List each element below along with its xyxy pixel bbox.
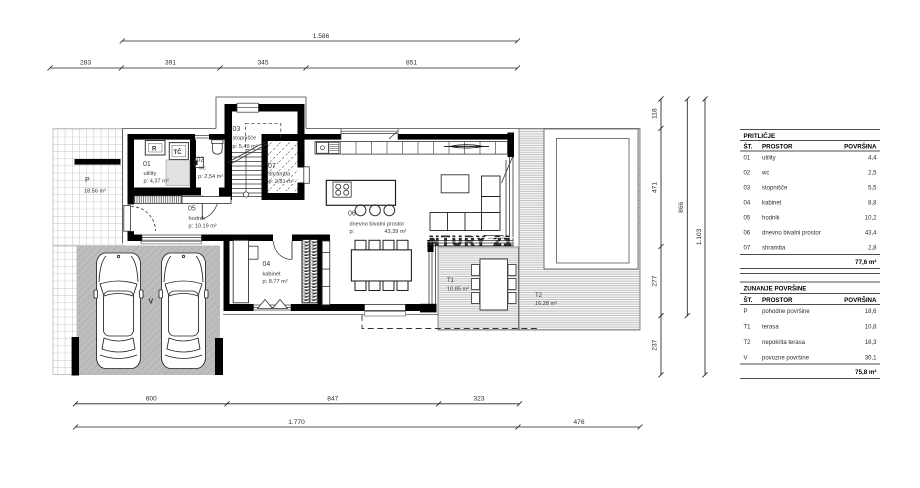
- svg-text:8,8: 8,8: [868, 201, 877, 207]
- svg-text:hodnik: hodnik: [189, 216, 206, 222]
- svg-text:P: P: [744, 309, 748, 315]
- svg-text:POVRŠINA: POVRŠINA: [844, 296, 877, 304]
- svg-text:T2: T2: [535, 293, 543, 299]
- svg-text:PROSTOR: PROSTOR: [762, 297, 793, 304]
- svg-text:10,8: 10,8: [865, 325, 877, 331]
- svg-text:hodnik: hodnik: [762, 216, 781, 222]
- svg-text:04: 04: [263, 261, 271, 268]
- svg-text:NTURY 21: NTURY 21: [429, 233, 514, 249]
- svg-text:R: R: [152, 147, 157, 153]
- svg-text:866: 866: [678, 201, 685, 212]
- svg-text:75,8 m²: 75,8 m²: [855, 369, 876, 376]
- svg-text:18.56 m²: 18.56 m²: [84, 189, 106, 195]
- svg-text:kabinet: kabinet: [263, 272, 281, 278]
- svg-text:POVRŠINA: POVRŠINA: [844, 143, 877, 151]
- svg-text:07: 07: [744, 246, 751, 252]
- svg-text:PROSTOR: PROSTOR: [762, 144, 793, 151]
- svg-text:600: 600: [146, 396, 157, 403]
- svg-text:02: 02: [197, 157, 205, 164]
- svg-text:237: 237: [652, 339, 659, 350]
- svg-text:277: 277: [652, 275, 659, 286]
- svg-text:471: 471: [652, 182, 659, 193]
- svg-text:wc: wc: [198, 166, 206, 172]
- svg-text:PRITLIČJE: PRITLIČJE: [744, 133, 776, 140]
- svg-text:10,2: 10,2: [865, 216, 877, 222]
- svg-text:05: 05: [188, 206, 196, 213]
- svg-text:kabinet: kabinet: [762, 201, 782, 207]
- svg-text:utility: utility: [762, 156, 776, 162]
- svg-text:ZUNANJE POVRŠINE: ZUNANJE POVRŠINE: [744, 285, 807, 293]
- svg-text:dnevno bivalni prostor: dnevno bivalni prostor: [350, 222, 405, 228]
- svg-text:utility: utility: [144, 171, 157, 177]
- svg-text:1.770: 1.770: [288, 419, 305, 426]
- svg-text:P: P: [85, 177, 90, 184]
- svg-text:5,5: 5,5: [868, 186, 877, 192]
- svg-text:p: 4,37 m²: p: 4,37 m²: [144, 179, 169, 185]
- svg-text:345: 345: [257, 60, 268, 67]
- svg-text:118: 118: [652, 108, 659, 119]
- svg-text:1.586: 1.586: [313, 33, 330, 40]
- svg-text:07: 07: [268, 163, 276, 170]
- svg-text:ŠT.: ŠT.: [744, 143, 753, 151]
- svg-text:p: 2,81 m²: p: 2,81 m²: [269, 179, 294, 185]
- svg-text:p: 2,54 m²: p: 2,54 m²: [198, 174, 223, 180]
- svg-text:391: 391: [165, 60, 176, 67]
- svg-text:stopnišče: stopnišče: [762, 186, 788, 192]
- svg-text:43,39 m²: 43,39 m²: [384, 229, 406, 235]
- svg-text:01: 01: [143, 161, 151, 168]
- svg-text:43,4: 43,4: [865, 231, 877, 237]
- svg-text:2,8: 2,8: [868, 246, 877, 252]
- svg-text:T1: T1: [447, 278, 455, 284]
- svg-text:16,3: 16,3: [865, 340, 877, 346]
- svg-text:03: 03: [744, 186, 751, 192]
- svg-text:shramba: shramba: [269, 172, 292, 178]
- svg-text:wc: wc: [761, 171, 769, 177]
- svg-text:TČ: TČ: [174, 149, 183, 156]
- svg-text:shramba: shramba: [762, 246, 786, 252]
- svg-text:T2: T2: [744, 340, 752, 346]
- svg-text:stopnišče: stopnišče: [233, 136, 257, 142]
- svg-text:pohodne površine: pohodne površine: [762, 309, 810, 315]
- svg-text:V: V: [149, 299, 154, 306]
- svg-text:ŠT.: ŠT.: [744, 296, 753, 304]
- svg-text:30,1: 30,1: [865, 356, 877, 362]
- svg-text:06: 06: [744, 231, 751, 237]
- svg-text:nepokrita terasa: nepokrita terasa: [762, 340, 806, 346]
- svg-text:847: 847: [327, 396, 338, 403]
- svg-text:283: 283: [80, 60, 91, 67]
- svg-text:851: 851: [406, 60, 417, 67]
- svg-text:p:: p:: [350, 229, 355, 235]
- svg-text:05: 05: [744, 216, 751, 222]
- svg-text:povozne površine: povozne površine: [762, 356, 810, 362]
- svg-text:77,6 m²: 77,6 m²: [855, 259, 876, 266]
- svg-text:476: 476: [573, 419, 584, 426]
- svg-text:01: 01: [744, 156, 751, 162]
- svg-text:T1: T1: [744, 325, 752, 331]
- svg-text:323: 323: [473, 396, 484, 403]
- svg-text:V: V: [744, 356, 748, 362]
- svg-text:1.103: 1.103: [696, 228, 703, 245]
- svg-text:4,4: 4,4: [868, 156, 877, 162]
- svg-text:p: 8.77 m²: p: 8.77 m²: [263, 279, 288, 285]
- svg-text:terasa: terasa: [762, 325, 779, 331]
- svg-text:03: 03: [233, 126, 241, 133]
- svg-text:02: 02: [744, 171, 751, 177]
- svg-text:16.28 m²: 16.28 m²: [535, 301, 557, 307]
- svg-text:10.85 m²: 10.85 m²: [447, 287, 469, 293]
- svg-text:2,5: 2,5: [868, 171, 877, 177]
- svg-text:p: 10.19 m²: p: 10.19 m²: [189, 224, 217, 230]
- svg-text:06: 06: [348, 211, 356, 218]
- svg-text:dnevno bivalni prostor: dnevno bivalni prostor: [762, 231, 821, 237]
- svg-text:04: 04: [744, 201, 751, 207]
- svg-text:18,6: 18,6: [865, 309, 877, 315]
- svg-text:p: 5,49 m²: p: 5,49 m²: [233, 144, 258, 150]
